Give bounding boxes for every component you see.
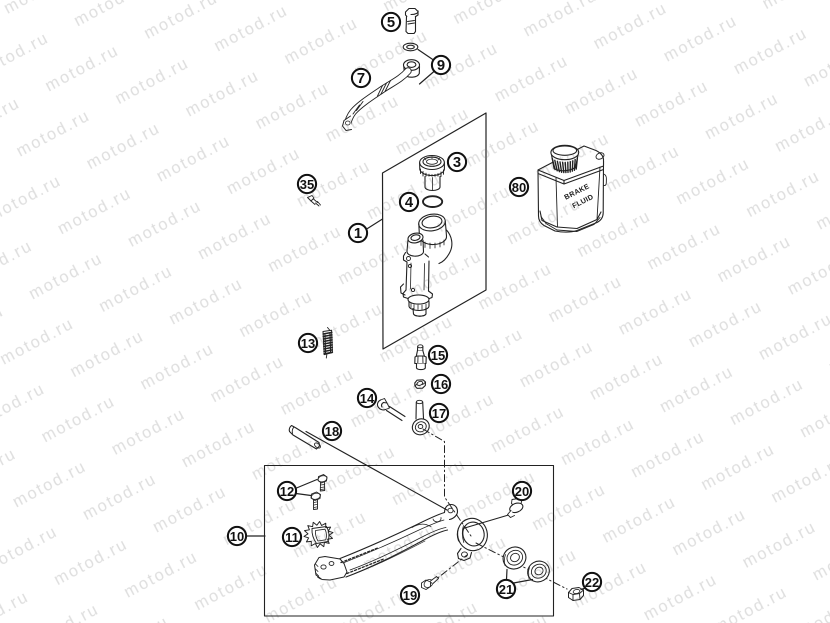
svg-text:5: 5 <box>387 15 395 31</box>
svg-text:1: 1 <box>354 226 362 242</box>
svg-text:7: 7 <box>357 71 365 87</box>
svg-text:19: 19 <box>403 588 417 603</box>
svg-text:15: 15 <box>431 348 445 363</box>
svg-text:9: 9 <box>437 58 445 74</box>
svg-text:14: 14 <box>360 391 375 406</box>
svg-text:20: 20 <box>515 484 529 499</box>
svg-text:21: 21 <box>499 582 513 597</box>
svg-text:35: 35 <box>300 177 314 192</box>
svg-text:4: 4 <box>405 195 414 211</box>
svg-text:11: 11 <box>285 530 299 545</box>
svg-text:17: 17 <box>432 406 446 421</box>
svg-text:16: 16 <box>434 377 448 392</box>
svg-text:10: 10 <box>230 529 244 544</box>
svg-text:13: 13 <box>301 336 315 351</box>
svg-text:80: 80 <box>512 180 526 195</box>
svg-text:22: 22 <box>585 575 599 590</box>
svg-text:3: 3 <box>453 155 461 171</box>
svg-text:18: 18 <box>325 424 339 439</box>
svg-text:12: 12 <box>280 484 294 499</box>
